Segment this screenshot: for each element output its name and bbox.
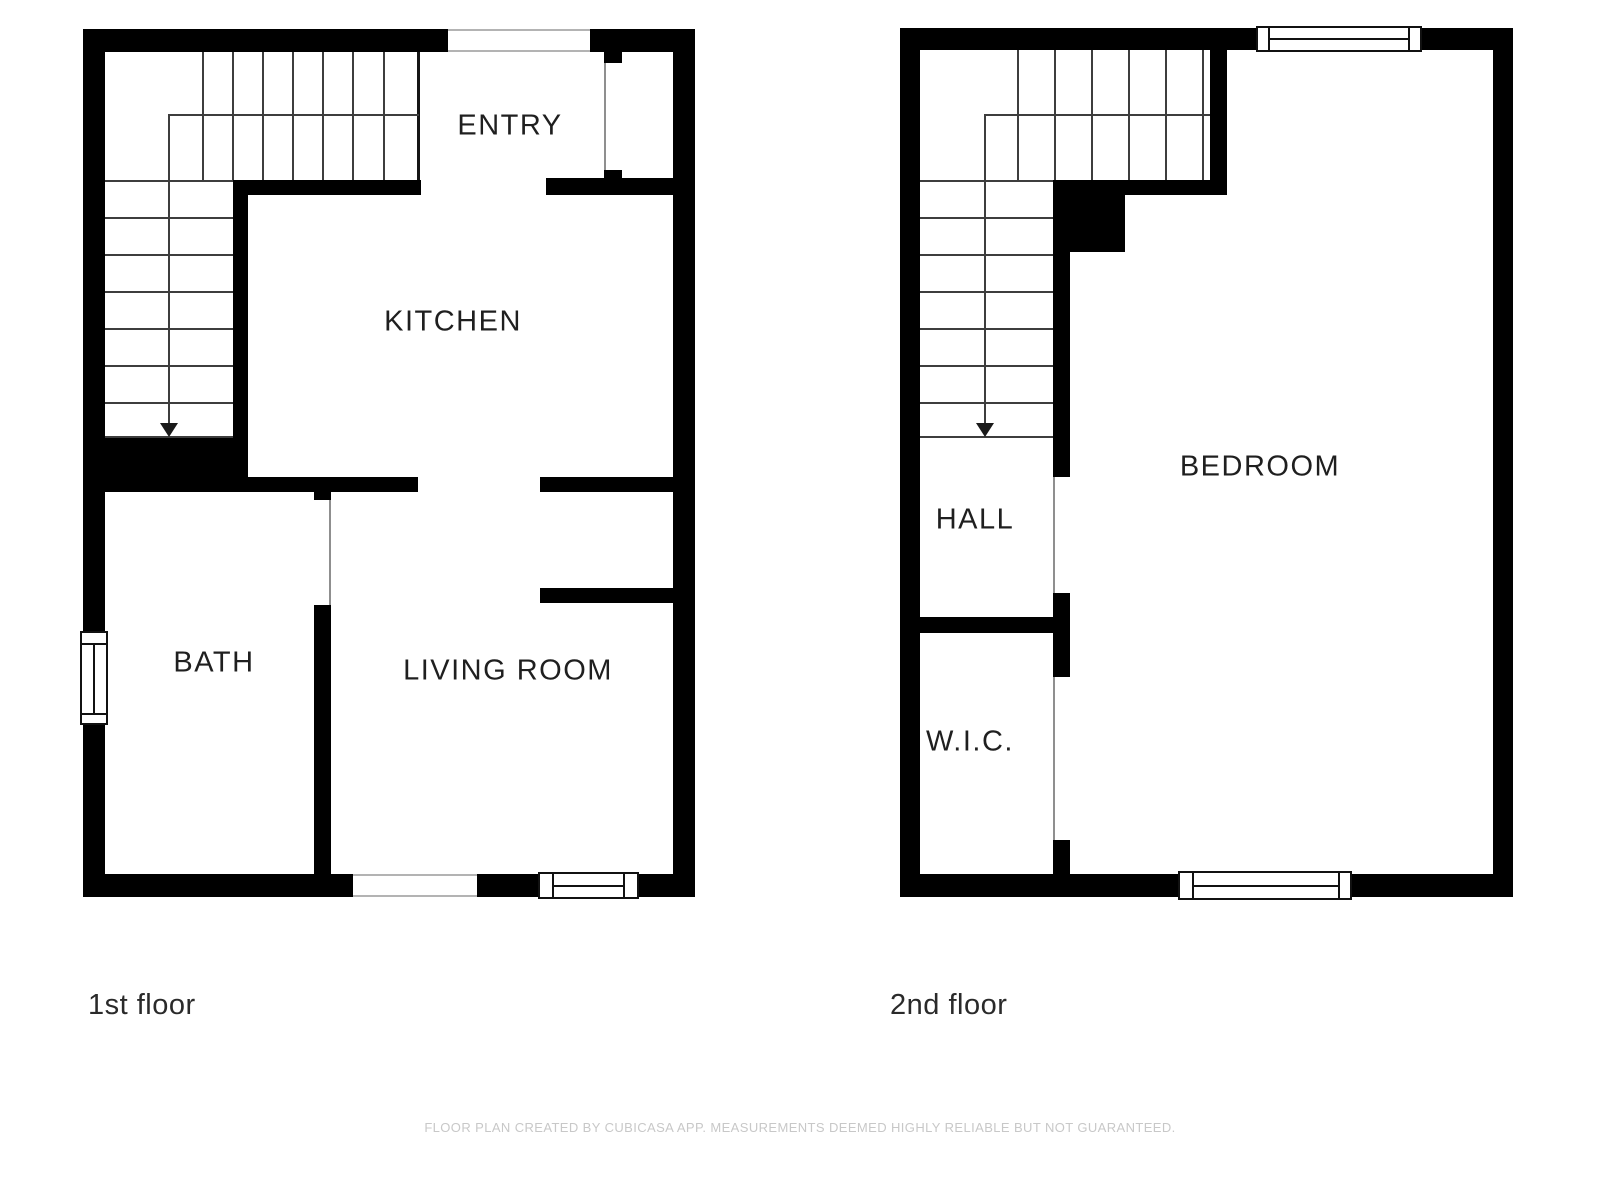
wall [604,52,622,63]
room-label-entry: ENTRY [457,110,562,143]
wall [673,29,695,897]
wall [83,29,448,52]
stair-edge [417,52,420,180]
room-label-living-room: LIVING ROOM [403,655,613,688]
stair-tread [322,52,324,180]
stairs-down-arrow-icon [160,423,178,437]
stair-tread [920,402,1053,404]
stair-tread [920,328,1053,330]
stair-tread [920,291,1053,293]
stair-tread [202,52,204,180]
door-opening [1053,677,1055,840]
window [80,631,108,725]
footer-disclaimer: FLOOR PLAN CREATED BY CUBICASA APP. MEAS… [0,1120,1600,1135]
stair-tread [920,254,1053,256]
door-opening [353,895,477,897]
wall [1350,874,1513,897]
door-opening [329,500,331,605]
wall [1210,50,1227,195]
door-opening [1053,477,1055,593]
stair-tread [383,52,385,180]
floor-1-caption: 1st floor [88,989,196,1022]
wall [1053,252,1070,477]
wall [1053,180,1125,252]
window [1256,26,1422,52]
stair-tread [292,52,294,180]
stair-walk-line [985,114,1210,116]
wall [105,477,418,492]
stair-walk-line [169,114,419,116]
floor-plan-canvas: ENTRY KITCHEN BATH LIVING ROOM [0,0,1600,1200]
window [538,872,639,899]
wall [83,874,353,897]
stair-tread [232,52,234,180]
window [1178,871,1352,900]
stair-tread [352,52,354,180]
wall [477,874,540,897]
wall [604,170,622,183]
wall [637,874,695,897]
room-label-wic: W.I.C. [926,726,1014,759]
room-label-kitchen: KITCHEN [384,306,522,339]
wall [233,180,421,195]
wall [540,477,673,492]
door-opening [353,874,477,876]
door-opening [604,52,606,178]
wall [1493,28,1513,897]
room-label-bedroom: BEDROOM [1180,451,1340,484]
stairs-down-arrow-icon [976,423,994,437]
floor-2-caption: 2nd floor [890,989,1007,1022]
stair-walk-line [984,114,986,424]
wall [1053,593,1070,677]
wall [233,195,248,437]
room-label-hall: HALL [936,504,1015,537]
room-label-bath: BATH [173,647,254,680]
stair-walk-line [168,114,170,424]
wall [900,28,920,897]
stair-tread [920,217,1053,219]
wall [314,605,331,875]
door-opening [448,50,590,52]
wall [314,492,331,500]
wall [540,588,673,603]
door-opening [448,29,590,31]
stair-tread [920,180,1053,182]
wall [1053,840,1070,897]
stair-tread [262,52,264,180]
stair-tread [920,365,1053,367]
wall [900,28,1258,50]
wall [920,617,1056,633]
wall [900,874,1180,897]
